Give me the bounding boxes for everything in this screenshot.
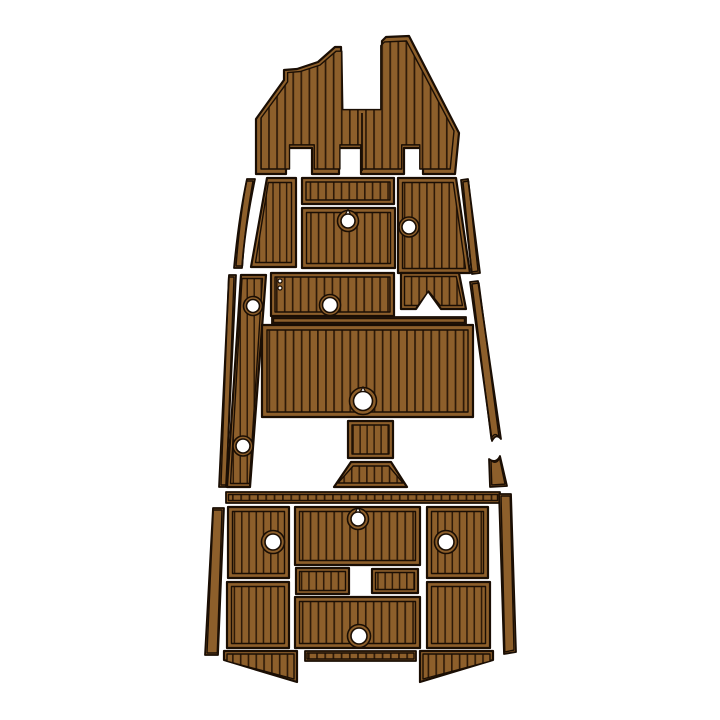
transom-center-trim-plank-field: [307, 653, 414, 659]
boat-deck-pad-illustration: [0, 0, 720, 720]
stern-starboard-lower-panel-plank-field: [432, 587, 486, 644]
pedestal-riser-panel: [348, 421, 393, 458]
round-cutout: [402, 220, 416, 234]
stern-mid-port-step-plank-field: [300, 572, 346, 591]
transom-port-wedge-plank-field: [227, 654, 294, 679]
drain-dot: [278, 279, 282, 283]
starboard-step-bracket-pad-plank-field: [404, 277, 462, 306]
cockpit-sole-panel: [262, 325, 473, 417]
round-cutout: [265, 534, 281, 550]
mid-hatch-panel: [271, 273, 394, 316]
stern-mid-starboard-step: [372, 569, 418, 593]
round-cutout: [341, 214, 355, 228]
stern-starboard-hatch-panel: [427, 507, 488, 578]
stern-mid-starboard-step-plank-field: [376, 573, 415, 590]
transom-center-trim: [305, 651, 416, 661]
pedestal-base-pad: [334, 462, 407, 487]
round-cutout: [351, 512, 365, 526]
round-cutout: [323, 298, 338, 313]
drain-dot: [278, 286, 282, 290]
stern-divider-trim-plank-field: [229, 495, 498, 501]
stern-divider-trim: [226, 492, 500, 503]
port-forward-panel: [251, 178, 296, 267]
starboard-gunwale-trim-upper: [470, 281, 501, 441]
transom-starboard-wedge: [420, 651, 493, 682]
starboard-stern-side-trim: [499, 494, 516, 654]
stern-starboard-lower-panel: [427, 582, 490, 648]
starboard-gunwale-trim-lower: [489, 456, 507, 487]
transom-starboard-wedge-plank-field: [423, 654, 490, 679]
stern-center-top-panel: [295, 507, 420, 565]
cockpit-divider-trim: [272, 317, 466, 324]
starboard-step-bracket-pad: [401, 273, 466, 309]
transom-port-wedge: [224, 651, 297, 682]
product-image-canvas: [0, 0, 720, 720]
port-stern-side-trim: [205, 508, 224, 655]
round-cutout: [351, 628, 367, 644]
helm-top-panel: [302, 178, 394, 204]
stern-center-lower-panel: [295, 597, 420, 648]
helm-top-panel-plank-field: [306, 182, 390, 200]
round-cutout: [247, 300, 260, 313]
bow-deck-pad-plank-field: [261, 41, 454, 169]
port-bow-side-trim: [234, 179, 255, 268]
stern-port-lower-panel-plank-field: [232, 587, 285, 644]
stern-mid-port-step: [296, 568, 349, 594]
round-cutout: [438, 534, 454, 550]
round-cutout: [236, 439, 250, 453]
helm-hatch-panel: [302, 208, 395, 268]
starboard-forward-panel: [398, 178, 470, 273]
bow-deck-pad: [256, 36, 459, 174]
pedestal-riser-panel-plank-field: [352, 425, 389, 454]
stern-port-lower-panel: [227, 582, 289, 648]
round-cutout: [354, 392, 373, 411]
stern-port-hatch-panel: [228, 507, 289, 578]
